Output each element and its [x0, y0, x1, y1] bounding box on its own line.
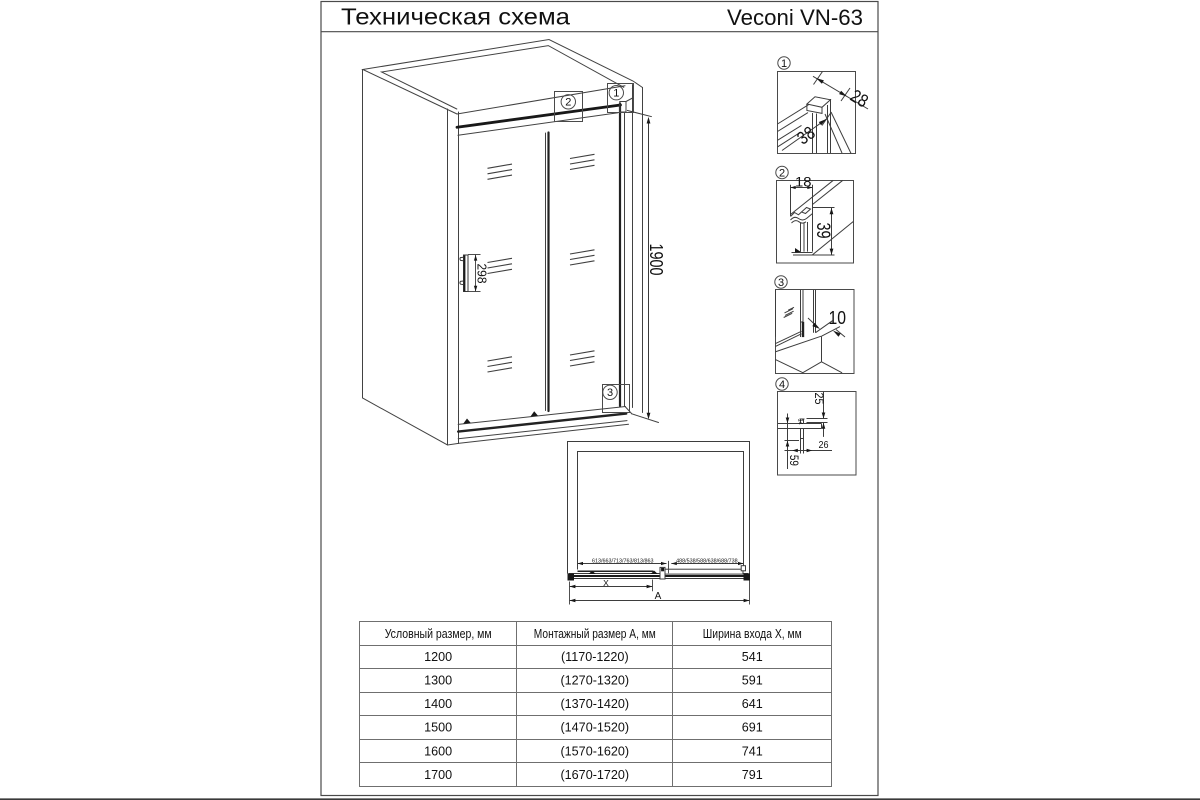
svg-text:591: 591 [742, 674, 763, 688]
svg-text:1500: 1500 [424, 721, 452, 735]
svg-text:Условный размер, мм: Условный размер, мм [385, 627, 492, 641]
svg-text:14: 14 [797, 419, 804, 425]
svg-text:1900: 1900 [646, 244, 666, 276]
svg-text:X: X [603, 578, 609, 588]
svg-text:741: 741 [742, 744, 763, 758]
svg-text:Veconi VN-63: Veconi VN-63 [727, 5, 863, 30]
svg-text:613/663/713/763/813/863: 613/663/713/763/813/863 [592, 558, 654, 564]
svg-text:38: 38 [793, 122, 818, 148]
svg-text:59: 59 [787, 455, 799, 466]
svg-text:488/538/588/638/688/738: 488/538/588/638/688/738 [676, 558, 738, 564]
svg-text:25: 25 [812, 393, 826, 405]
svg-text:Монтажный размер А, мм: Монтажный размер А, мм [534, 627, 656, 641]
svg-text:1700: 1700 [424, 768, 452, 782]
svg-text:2: 2 [565, 97, 571, 109]
svg-text:(1570-1620): (1570-1620) [560, 744, 629, 758]
svg-text:4: 4 [779, 379, 785, 391]
svg-text:A: A [655, 591, 662, 602]
svg-text:2: 2 [779, 167, 785, 179]
svg-text:541: 541 [742, 650, 763, 664]
svg-text:(1370-1420): (1370-1420) [560, 697, 629, 711]
svg-text:(1670-1720): (1670-1720) [560, 768, 629, 782]
svg-text:1: 1 [781, 58, 787, 70]
svg-text:28: 28 [847, 86, 872, 112]
svg-text:1400: 1400 [424, 697, 452, 711]
svg-text:26: 26 [819, 440, 829, 451]
svg-text:641: 641 [742, 697, 763, 711]
svg-text:1200: 1200 [424, 650, 452, 664]
svg-text:691: 691 [742, 721, 763, 735]
svg-text:10: 10 [829, 308, 847, 328]
svg-text:298: 298 [474, 264, 489, 284]
svg-text:791: 791 [742, 768, 763, 782]
svg-text:(1270-1320): (1270-1320) [560, 674, 629, 688]
svg-text:(1470-1520): (1470-1520) [560, 721, 629, 735]
svg-text:39: 39 [812, 223, 833, 239]
svg-text:(1170-1220): (1170-1220) [561, 650, 629, 664]
svg-text:1: 1 [613, 88, 619, 100]
svg-text:3: 3 [607, 387, 613, 399]
svg-text:Техническая схема: Техническая схема [341, 4, 571, 30]
svg-text:1300: 1300 [424, 674, 452, 688]
svg-text:18: 18 [795, 175, 812, 190]
svg-text:3: 3 [778, 277, 784, 289]
svg-text:1600: 1600 [424, 744, 452, 758]
svg-text:Ширина входа Х, мм: Ширина входа Х, мм [703, 627, 802, 641]
